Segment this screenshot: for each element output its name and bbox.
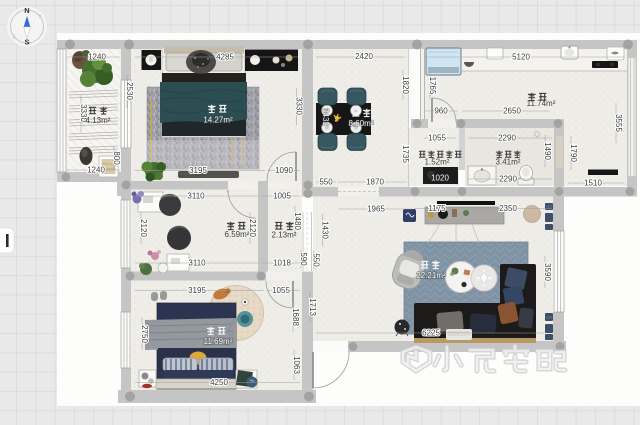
svg-text:1005: 1005 [273, 192, 291, 201]
svg-text:1820: 1820 [401, 76, 410, 94]
svg-text:1965: 1965 [367, 205, 385, 214]
svg-text:4285: 4285 [216, 53, 234, 62]
svg-text:22.21m²: 22.21m² [416, 271, 446, 280]
svg-text:590: 590 [299, 252, 308, 266]
svg-text:1790: 1790 [569, 144, 578, 162]
svg-text:3110: 3110 [188, 259, 206, 268]
svg-text:550: 550 [319, 178, 333, 187]
svg-text:800: 800 [112, 151, 121, 165]
svg-text:1055: 1055 [272, 286, 290, 295]
svg-text:1020: 1020 [431, 174, 449, 183]
svg-text:3330: 3330 [295, 97, 304, 115]
svg-text:8.60m²: 8.60m² [349, 119, 374, 128]
svg-text:1735: 1735 [401, 145, 410, 163]
svg-text:1510: 1510 [584, 179, 602, 188]
svg-text:1090: 1090 [275, 166, 293, 175]
svg-text:1430: 1430 [321, 221, 330, 239]
svg-text:1870: 1870 [366, 178, 384, 187]
svg-text:11.69m²: 11.69m² [204, 337, 233, 346]
svg-text:2120: 2120 [139, 219, 148, 237]
svg-text:3195: 3195 [189, 166, 207, 175]
svg-text:1480: 1480 [293, 212, 302, 230]
svg-text:4250: 4250 [210, 378, 228, 387]
svg-text:N: N [24, 6, 29, 15]
svg-text:1018: 1018 [273, 259, 291, 268]
svg-text:1240: 1240 [88, 53, 106, 62]
svg-text:550: 550 [312, 253, 321, 267]
svg-text:2650: 2650 [503, 107, 521, 116]
svg-text:6225: 6225 [422, 329, 440, 338]
svg-text:2530: 2530 [125, 82, 134, 100]
svg-text:2290: 2290 [499, 175, 517, 184]
svg-text:2350: 2350 [499, 204, 517, 213]
svg-text:11.74m²: 11.74m² [527, 99, 556, 108]
svg-text:1175: 1175 [428, 204, 446, 213]
svg-text:S: S [24, 38, 29, 47]
svg-text:2.13m²: 2.13m² [272, 231, 297, 240]
svg-text:6.59m²: 6.59m² [225, 230, 250, 239]
svg-text:1063: 1063 [292, 356, 301, 374]
svg-text:5120: 5120 [512, 53, 530, 62]
svg-text:4.13m²: 4.13m² [86, 116, 111, 125]
svg-text:2420: 2420 [355, 52, 373, 61]
svg-text:14.27m²: 14.27m² [203, 116, 233, 125]
svg-text:3590: 3590 [543, 263, 552, 281]
svg-text:3110: 3110 [187, 192, 205, 201]
svg-text:3432: 3432 [321, 108, 330, 126]
svg-text:3555: 3555 [614, 114, 623, 132]
svg-text:960: 960 [434, 107, 448, 116]
svg-text:1765: 1765 [428, 77, 437, 95]
svg-text:3.41m²: 3.41m² [496, 158, 521, 167]
svg-text:2290: 2290 [498, 134, 516, 143]
svg-text:1240: 1240 [87, 166, 105, 175]
svg-text:1713: 1713 [308, 298, 317, 316]
svg-text:1490: 1490 [543, 142, 552, 160]
svg-text:1055: 1055 [428, 134, 446, 143]
svg-text:1688: 1688 [291, 308, 300, 326]
svg-text:2750: 2750 [140, 325, 149, 343]
svg-text:1.52m²: 1.52m² [425, 158, 450, 167]
svg-text:3195: 3195 [188, 286, 206, 295]
